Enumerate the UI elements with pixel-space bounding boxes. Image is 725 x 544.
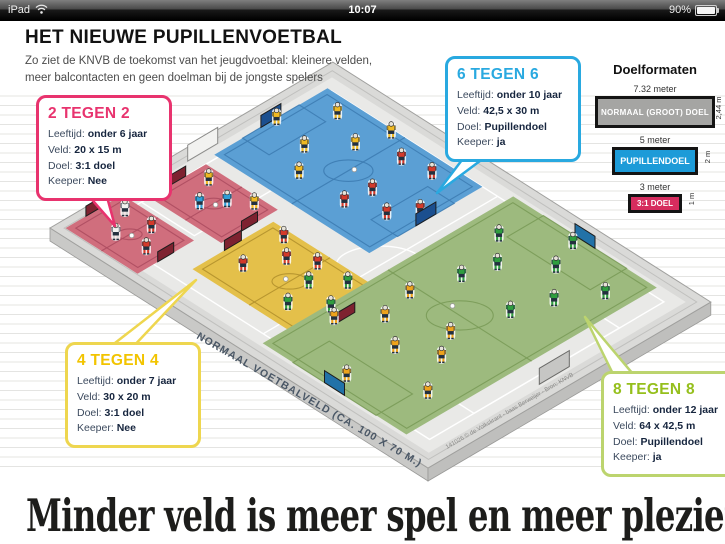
player [405, 282, 414, 300]
callout-title: 6 TEGEN 6 [457, 66, 569, 84]
callout-6-tegen-6: 6 TEGEN 6 Leeftijd: onder 10 jaar Veld: … [445, 56, 581, 162]
callout-4-tegen-4: 4 TEGEN 4 Leeftijd: onder 7 jaar Veld: 3… [65, 342, 201, 448]
player [382, 203, 391, 221]
goal-box-normaal: NORMAAL (GROOT) DOEL [595, 96, 715, 128]
player [283, 293, 292, 311]
callout-2-tegen-2: 2 TEGEN 2 Leeftijd: onder 6 jaar Veld: 2… [36, 95, 172, 201]
player [147, 216, 156, 234]
player [381, 305, 390, 323]
player [300, 136, 309, 154]
callout-title: 8 TEGEN 8 [613, 381, 725, 399]
battery-icon [695, 5, 717, 16]
page-subtitle: Zo ziet de KNVB de toekomst van het jeug… [25, 53, 383, 86]
player [397, 148, 406, 166]
goal-box-31: 3:1 DOEL [628, 194, 682, 213]
ipad-screen: iPad 10:07 90% NORMAAL VOETBALVELD (CA. … [0, 0, 725, 544]
player [343, 272, 352, 290]
player [568, 232, 577, 250]
player [391, 336, 400, 354]
player [279, 226, 288, 244]
callout-title: 4 TEGEN 4 [77, 352, 189, 370]
battery-percent: 90% [669, 4, 691, 16]
player [437, 346, 446, 364]
wifi-icon [35, 4, 48, 17]
legend-title: Doelformaten [586, 62, 724, 77]
ball [129, 233, 134, 238]
player [282, 248, 291, 266]
player [446, 322, 455, 340]
player [494, 225, 503, 243]
player [550, 289, 559, 307]
callout-title: 2 TEGEN 2 [48, 105, 160, 123]
ball [283, 277, 288, 282]
player [457, 265, 466, 283]
player [250, 193, 259, 211]
player [313, 253, 322, 271]
clock: 10:07 [128, 4, 597, 16]
player [387, 122, 396, 140]
legend-goal-pupillen: 5 meter PUPILLENDOEL 2 m [586, 135, 724, 175]
player [601, 282, 610, 300]
player [493, 253, 502, 271]
player [120, 199, 129, 217]
player [551, 256, 560, 274]
player [294, 162, 303, 180]
player [195, 192, 204, 210]
player [342, 365, 351, 383]
player [340, 191, 349, 209]
player [142, 238, 151, 256]
callout-8-tegen-8: 8 TEGEN 8 Leeftijd: onder 12 jaar Veld: … [601, 371, 725, 477]
player [351, 133, 360, 151]
player [204, 169, 213, 187]
legend-goal-normaal: 7.32 meter NORMAAL (GROOT) DOEL 2,44 m [586, 84, 724, 128]
ball [213, 202, 218, 207]
player [239, 255, 248, 273]
player [427, 162, 436, 180]
ball [450, 304, 455, 309]
player [223, 190, 232, 208]
player [330, 308, 339, 326]
player [506, 301, 515, 319]
legend-goal-31: 3 meter 3:1 DOEL 1 m [586, 182, 724, 213]
goal-box-pupillen: PUPILLENDOEL [612, 147, 698, 175]
page-title: HET NIEUWE PUPILLENVOETBAL [25, 27, 342, 49]
player [368, 179, 377, 197]
player [423, 382, 432, 400]
article-headline: Minder veld is meer spel en meer plezier [26, 489, 725, 542]
player [333, 102, 342, 120]
ball [352, 167, 357, 172]
goal-size-legend: Doelformaten 7.32 meter NORMAAL (GROOT) … [586, 62, 724, 213]
device-label: iPad [8, 4, 30, 16]
status-bar: iPad 10:07 90% [0, 0, 725, 21]
player [304, 272, 313, 290]
player [272, 108, 281, 126]
